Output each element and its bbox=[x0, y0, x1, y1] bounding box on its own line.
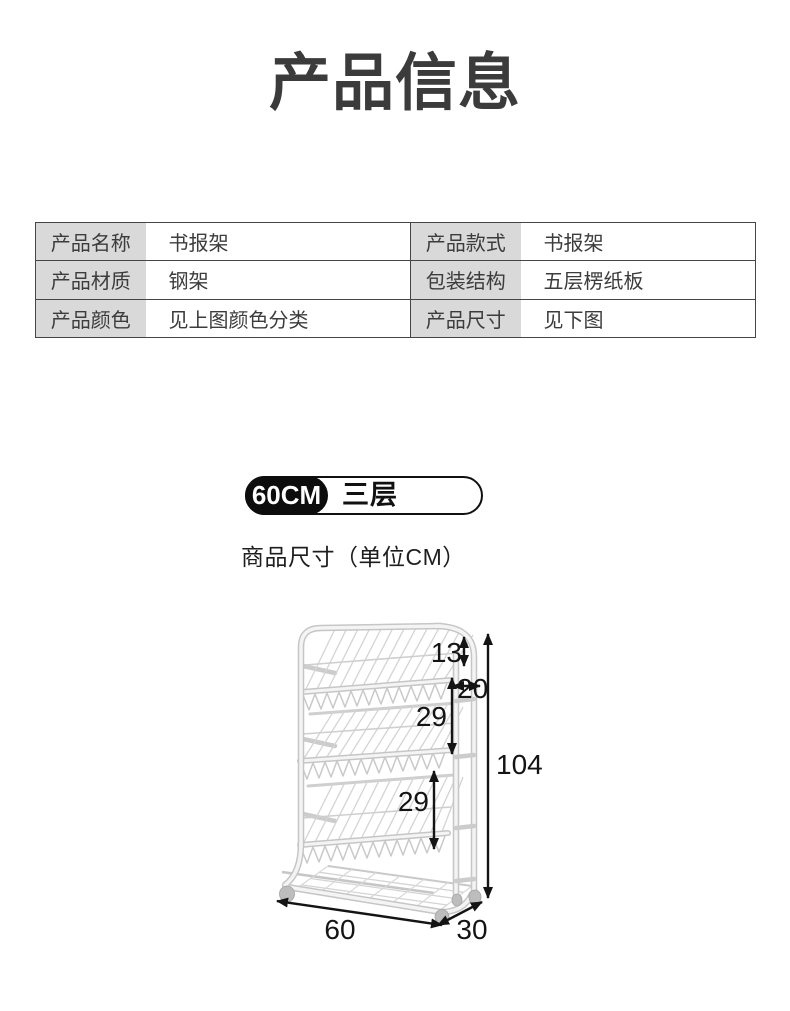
spec-value: 书报架 bbox=[146, 223, 411, 261]
dim-label-width: 60 bbox=[324, 914, 355, 945]
product-spec-table: 产品名称 书报架 产品款式 书报架 产品材质 钢架 包装结构 五层楞纸板 产品颜… bbox=[35, 222, 756, 338]
spec-label: 产品材质 bbox=[36, 261, 146, 299]
table-row: 产品材质 钢架 包装结构 五层楞纸板 bbox=[36, 261, 756, 299]
dim-label-shelf-gap-lower: 29 bbox=[398, 786, 429, 817]
spec-value: 见上图颜色分类 bbox=[146, 299, 411, 337]
page-title: 产品信息 bbox=[0, 50, 790, 118]
rack-drawing bbox=[280, 626, 482, 925]
spec-value: 五层楞纸板 bbox=[521, 261, 756, 299]
dimension-caption: 商品尺寸（单位CM） bbox=[241, 538, 466, 572]
dim-label-total-height: 104 bbox=[496, 749, 543, 780]
dim-arrow-width bbox=[277, 901, 442, 925]
spec-label: 产品名称 bbox=[36, 223, 146, 261]
size-badge: 60CM bbox=[245, 476, 328, 515]
dim-label-upper-gap: 20 bbox=[457, 673, 488, 704]
table-row: 产品颜色 见上图颜色分类 产品尺寸 见下图 bbox=[36, 299, 756, 337]
product-info-page: 产品信息 产品名称 书报架 产品款式 书报架 产品材质 钢架 包装结构 五层楞纸… bbox=[0, 0, 790, 1011]
spec-value: 见下图 bbox=[521, 299, 756, 337]
spec-value: 书报架 bbox=[521, 223, 756, 261]
spec-label: 产品尺寸 bbox=[411, 299, 521, 337]
table-row: 产品名称 书报架 产品款式 书报架 bbox=[36, 223, 756, 261]
spec-label: 产品颜色 bbox=[36, 299, 146, 337]
dim-label-depth: 30 bbox=[456, 914, 487, 945]
spec-label: 包装结构 bbox=[411, 261, 521, 299]
spec-label: 产品款式 bbox=[411, 223, 521, 261]
tier-label: 三层 bbox=[342, 478, 398, 513]
dim-label-top-height: 13 bbox=[431, 637, 462, 668]
spec-value: 钢架 bbox=[146, 261, 411, 299]
dim-label-shelf-gap-upper: 29 bbox=[416, 701, 447, 732]
rack-dimension-diagram: 13 20 29 29 104 60 30 bbox=[235, 595, 555, 955]
